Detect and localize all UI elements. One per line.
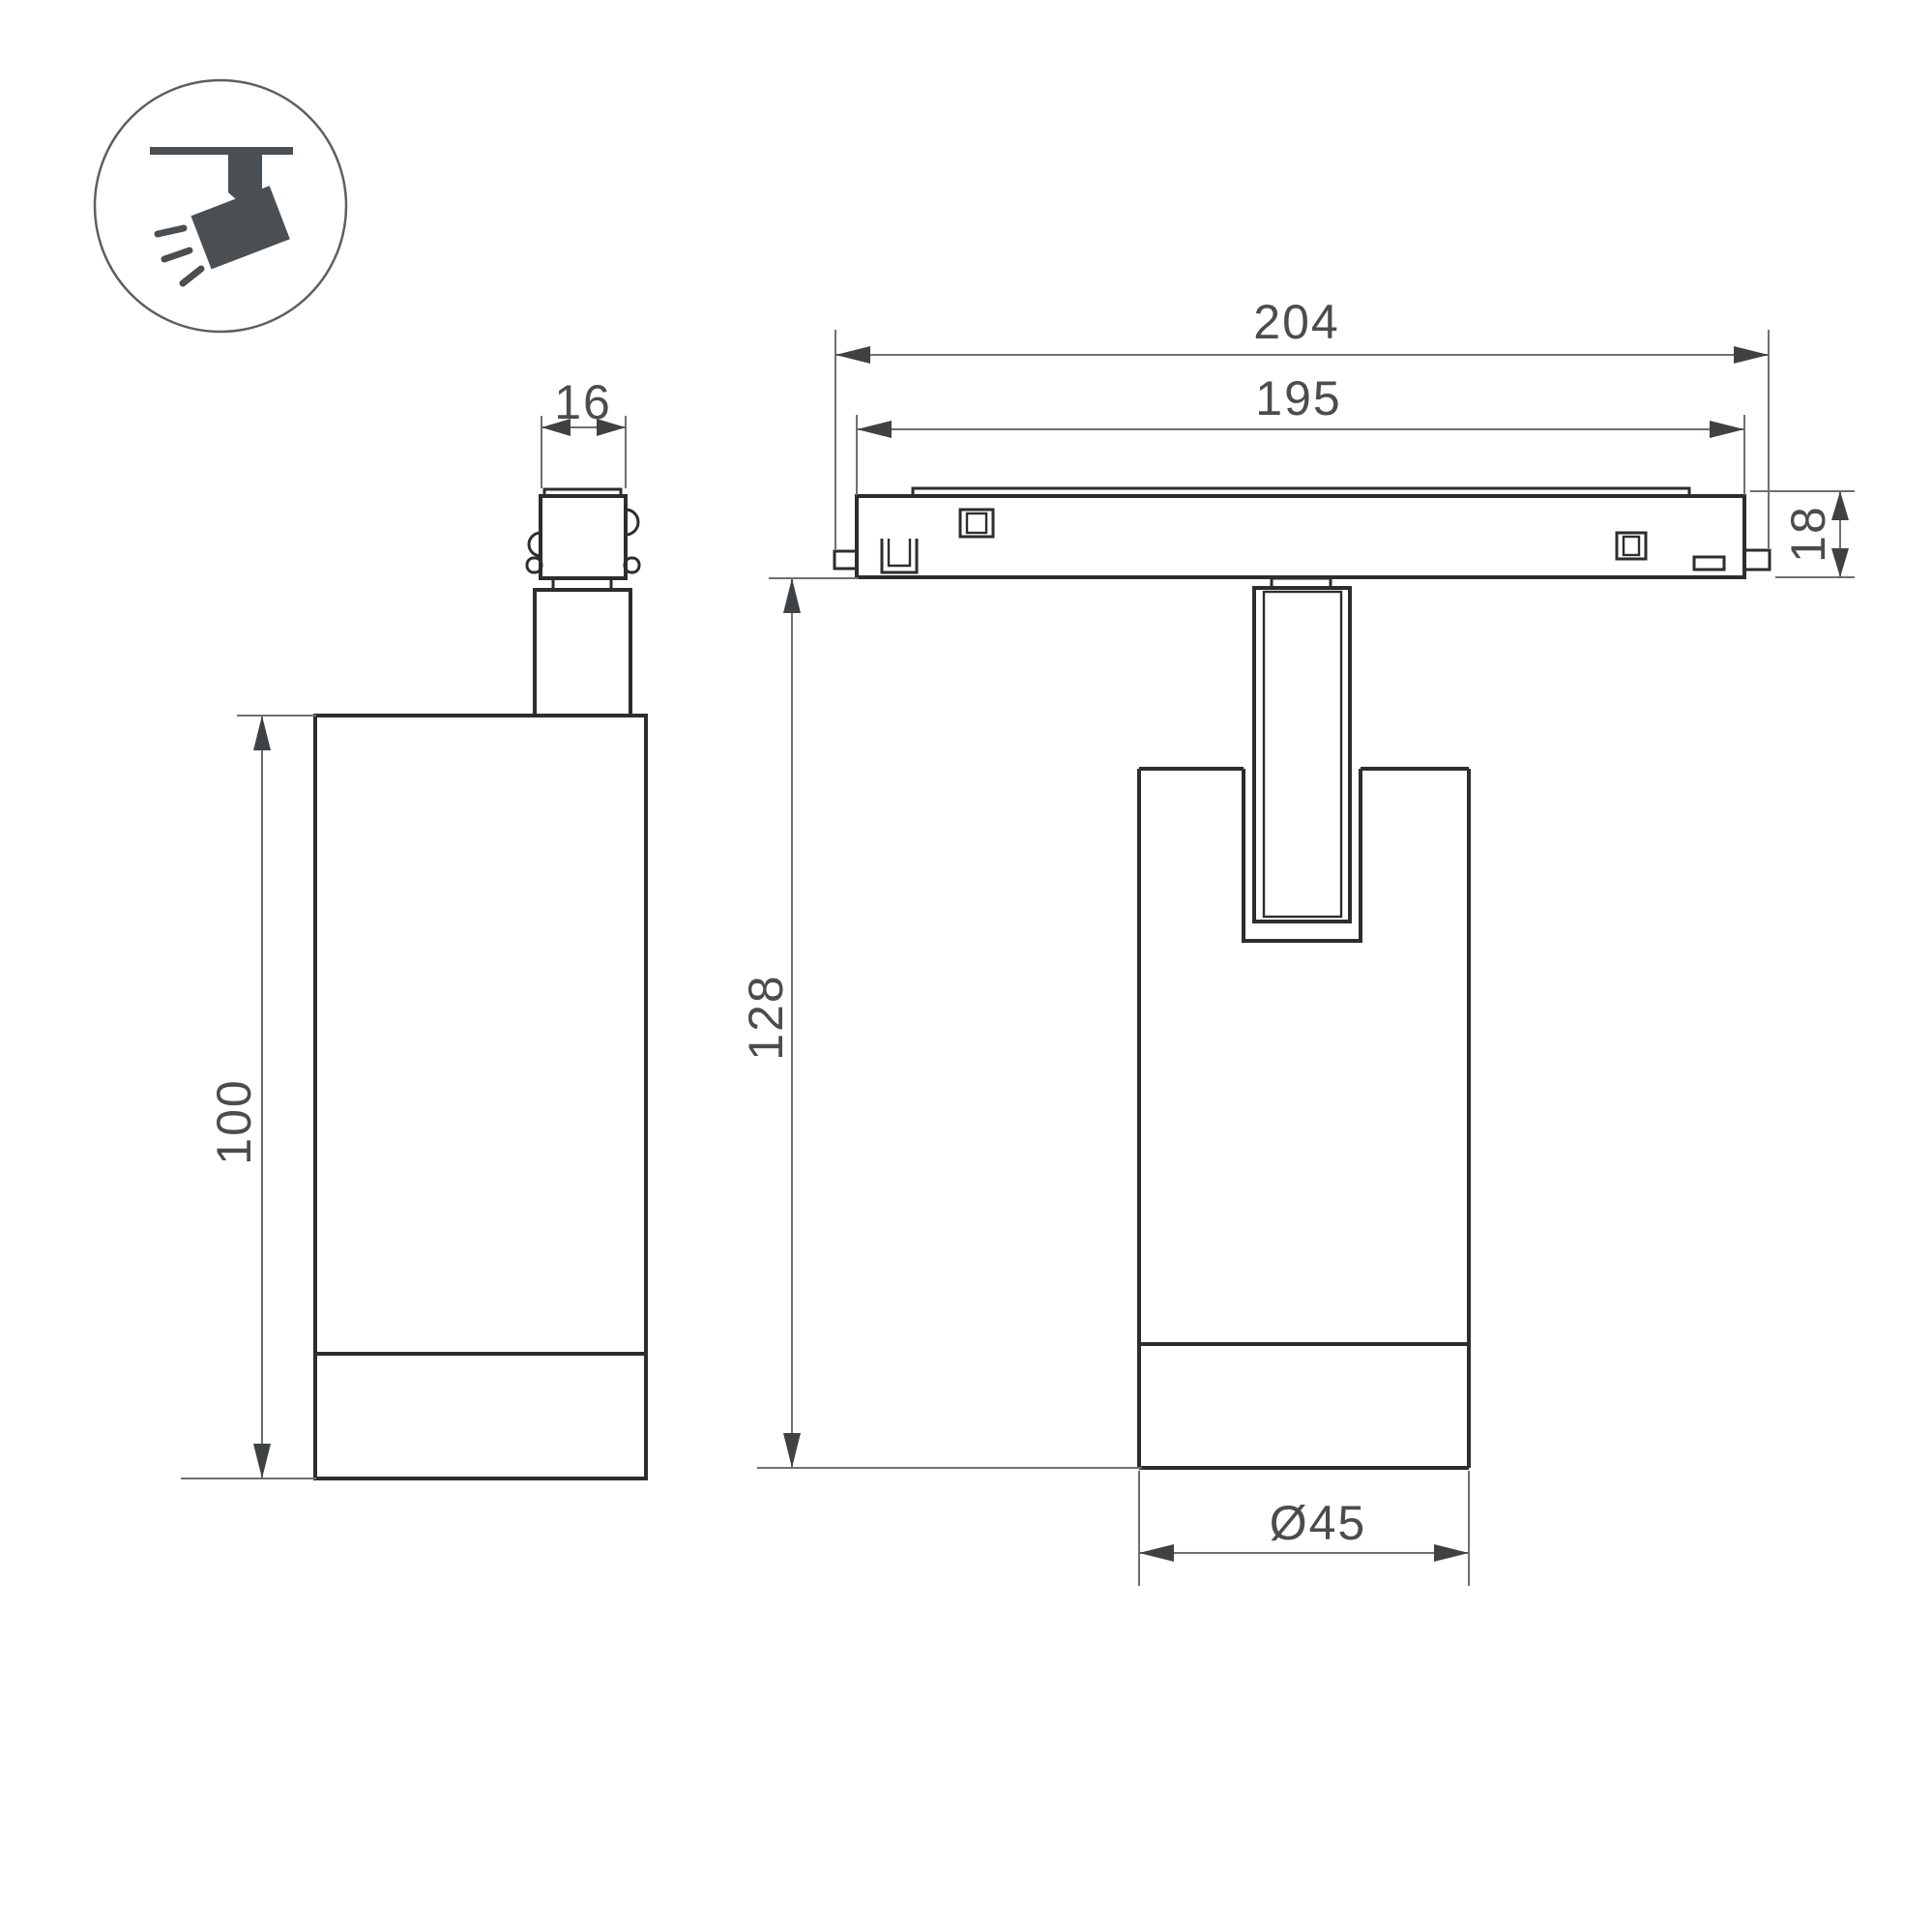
dimension-label-100: 100 — [207, 1078, 261, 1164]
icon-light-ray-3 — [183, 269, 201, 283]
track-spotlight-icon — [150, 147, 293, 283]
front-track-right-end-tab — [1744, 550, 1770, 570]
front-track-slot — [1694, 557, 1724, 570]
dimension-label-d45: Ø45 — [1270, 1496, 1367, 1550]
side-stem — [535, 590, 630, 716]
icon-ceiling-bar — [150, 147, 293, 155]
arrowhead-top — [253, 716, 271, 750]
product-type-icon — [95, 80, 346, 332]
dimension-label-204: 204 — [1253, 295, 1339, 349]
technical-drawing-page: 16 204 195 18 100 12 — [0, 0, 1932, 1932]
front-stem — [1254, 588, 1350, 922]
arrowhead-left — [835, 346, 870, 364]
arrowhead-right — [1710, 421, 1744, 438]
arrowhead-bottom — [783, 1433, 801, 1468]
front-track-u-clip — [882, 539, 917, 572]
side-adapter-block — [541, 496, 626, 578]
arrowhead-bottom — [253, 1444, 271, 1478]
front-track-right-contact-inner — [1624, 537, 1639, 555]
dimension-track-length-body: 195 — [857, 371, 1744, 495]
dimension-label-16: 16 — [554, 375, 612, 429]
side-view — [315, 489, 646, 1478]
arrowhead-right — [1734, 346, 1769, 364]
front-track-u-clip-inner — [889, 539, 910, 566]
side-body — [315, 716, 646, 1478]
arrowhead-right — [1434, 1544, 1469, 1562]
technical-drawing-canvas: 16 204 195 18 100 12 — [0, 0, 1932, 1932]
arrowhead-left — [1139, 1544, 1174, 1562]
front-view — [834, 488, 1770, 1468]
arrowhead-left — [857, 421, 892, 438]
icon-light-ray-1 — [158, 228, 184, 234]
dimension-body-diameter: Ø45 — [1139, 1471, 1469, 1586]
dimension-label-128: 128 — [739, 974, 793, 1060]
dimension-adapter-width: 16 — [542, 375, 626, 488]
dimension-track-height: 18 — [1750, 491, 1855, 577]
front-track-left-contact-inner — [967, 513, 986, 533]
arrowhead-top — [783, 578, 801, 613]
front-track-left-end-tab — [834, 551, 857, 569]
dimension-label-195: 195 — [1255, 371, 1341, 425]
icon-light-ray-2 — [164, 250, 190, 259]
dimension-overall-height: 128 — [739, 578, 1142, 1468]
icon-spot-head — [190, 186, 289, 269]
dimension-spot-body-height: 100 — [181, 716, 316, 1478]
dimension-label-18: 18 — [1781, 505, 1835, 563]
